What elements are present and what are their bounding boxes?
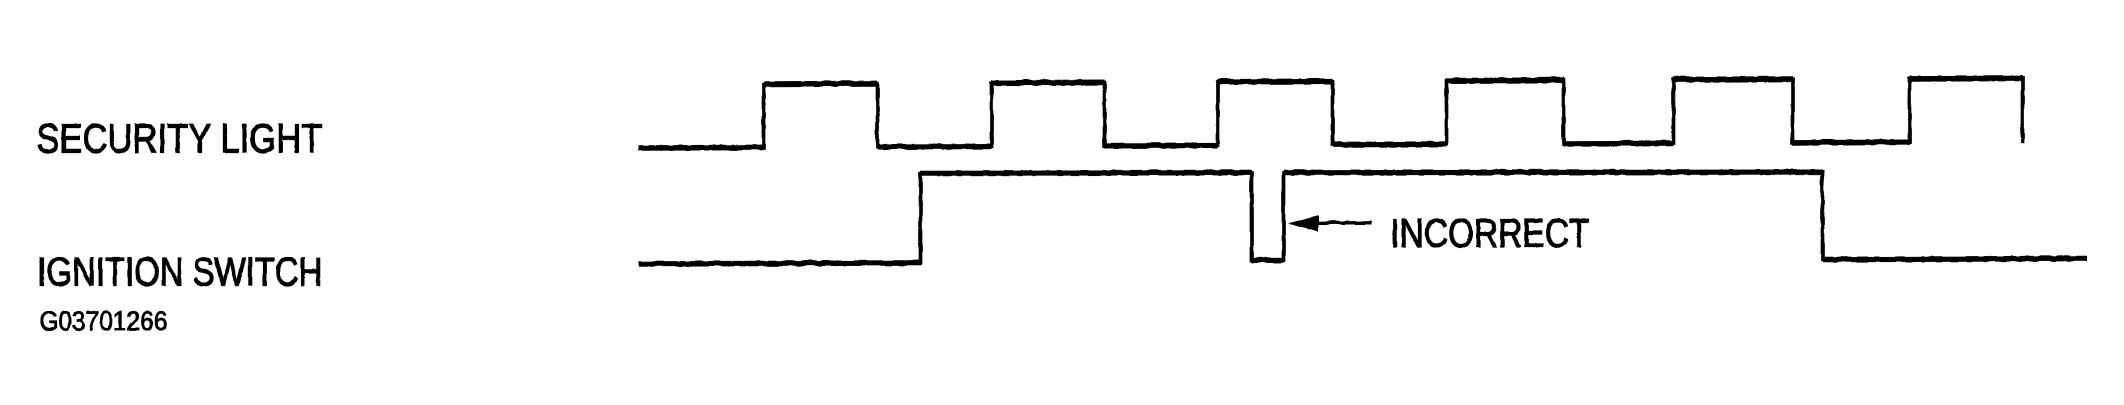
svg-text:IGNITION SWITCH: IGNITION SWITCH [37, 250, 322, 294]
svg-text:G03701266: G03701266 [39, 305, 167, 336]
svg-text:INCORRECT: INCORRECT [1390, 212, 1589, 256]
svg-text:SECURITY LIGHT: SECURITY LIGHT [36, 115, 322, 161]
